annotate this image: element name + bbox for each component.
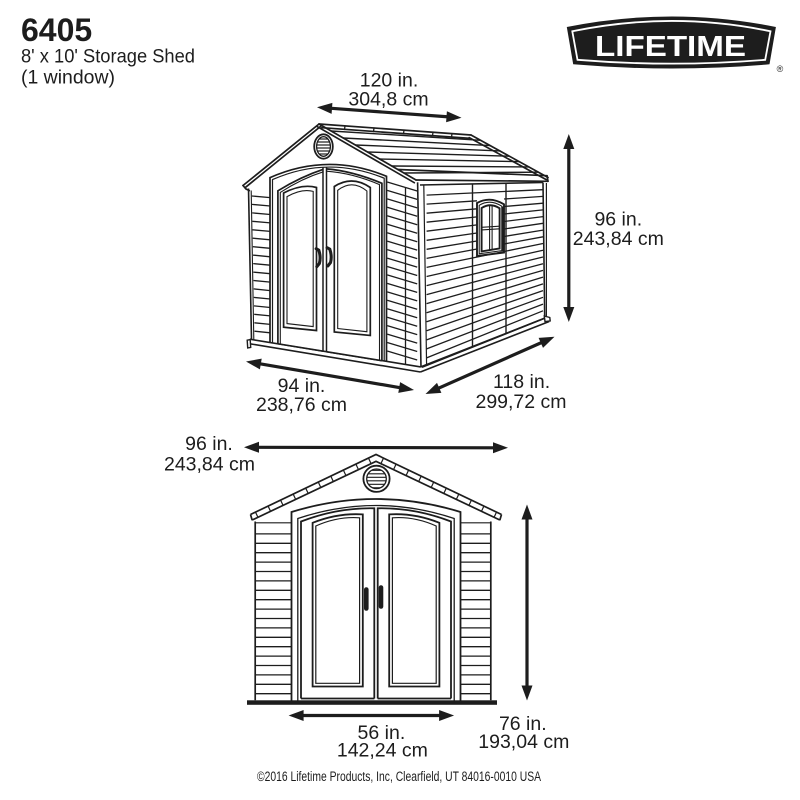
- svg-text:(1 window): (1 window): [21, 68, 115, 89]
- svg-text:®: ®: [777, 64, 784, 74]
- svg-text:96 in.: 96 in.: [185, 433, 233, 455]
- svg-text:299,72 cm: 299,72 cm: [475, 391, 566, 413]
- svg-text:238,76 cm: 238,76 cm: [256, 394, 347, 416]
- svg-text:LIFETIME: LIFETIME: [595, 31, 746, 63]
- svg-text:8' x 10' Storage Shed: 8' x 10' Storage Shed: [21, 47, 195, 68]
- svg-text:6405: 6405: [21, 12, 92, 48]
- svg-text:©2016 Lifetime Products, Inc,: ©2016 Lifetime Products, Inc, Clearfield…: [257, 769, 541, 784]
- svg-text:243,84 cm: 243,84 cm: [164, 453, 255, 475]
- svg-text:193,04 cm: 193,04 cm: [478, 731, 569, 753]
- svg-text:304,8 cm: 304,8 cm: [348, 89, 428, 111]
- svg-text:243,84 cm: 243,84 cm: [573, 228, 664, 250]
- svg-text:142,24 cm: 142,24 cm: [337, 740, 428, 762]
- svg-text:118 in.: 118 in.: [493, 371, 550, 393]
